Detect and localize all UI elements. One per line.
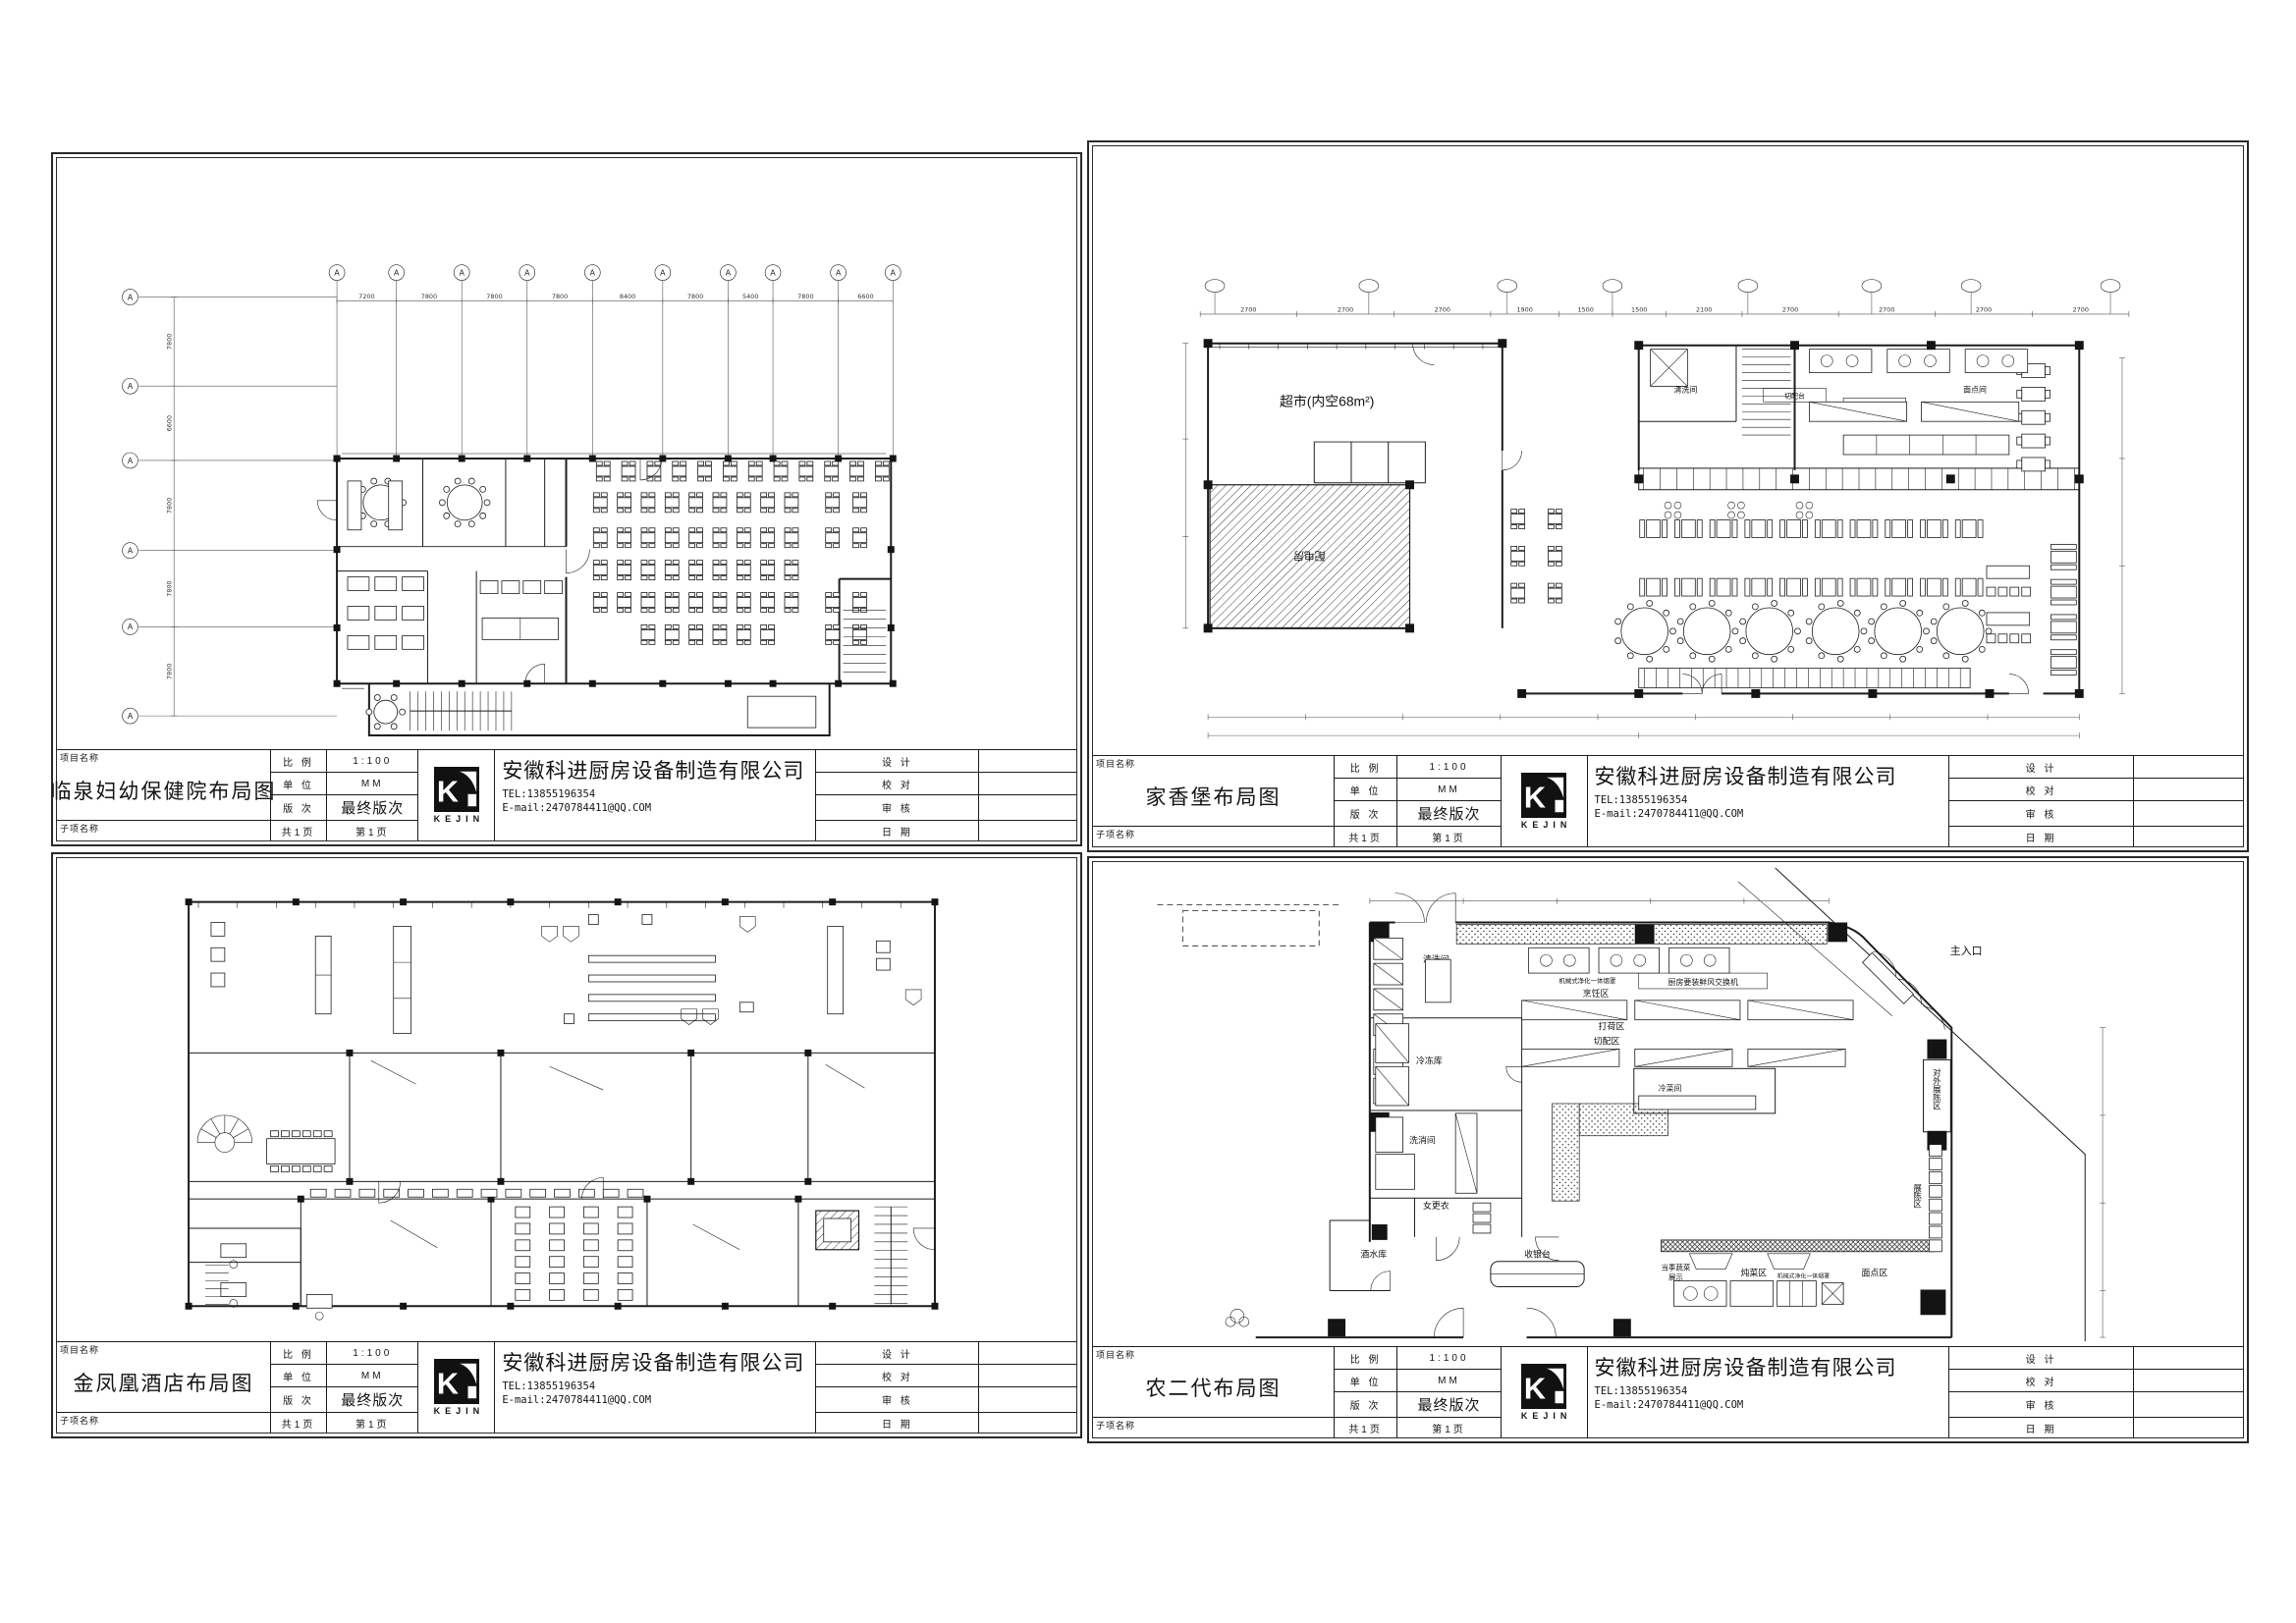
titleblock-cell [2134, 827, 2243, 846]
svg-text:A: A [660, 268, 666, 277]
sheet-jiaxiangbao: 超市(内空68m²) 配电房 清洗间 切配台 打荷台 面点间 270027002… [1087, 140, 2249, 852]
titleblock-cell: 比 例 [271, 750, 326, 773]
titleblock-column [2134, 756, 2243, 846]
svg-text:1500: 1500 [1631, 305, 1647, 313]
svg-text:A: A [128, 622, 134, 631]
fresh-air-note: 厨房要装鲜风交换机 [1668, 977, 1738, 987]
company-name: 安徽科进厨房设备制造有限公司 [502, 755, 815, 784]
svg-text:2700: 2700 [1435, 305, 1450, 313]
svg-text:A: A [128, 457, 134, 465]
svg-text:A: A [334, 268, 340, 277]
cooking-zone-label: 烹饪区 [1583, 988, 1610, 999]
titleblock-column [979, 1342, 1076, 1433]
titleblock-column: 1:100MM最终版次第1页 [327, 750, 418, 840]
company-tel: TEL:13855196354 [502, 1380, 815, 1393]
titleblock-cell: 设 计 [816, 1342, 978, 1365]
company-email: E-mail:2470784411@QQ.COM [1595, 1398, 1949, 1412]
titleblock-cell [979, 795, 1076, 821]
kejin-logo-icon: K [434, 767, 479, 812]
svg-text:1900: 1900 [1516, 305, 1532, 313]
titleblock-cell [979, 1387, 1076, 1413]
svg-text:A: A [770, 268, 776, 277]
kejin-logo-text: KEJIN [1521, 820, 1572, 830]
titleblock-cell: 版 次 [1335, 801, 1396, 827]
company-cell: 安徽科进厨房设备制造有限公司TEL:13855196354E-mail:2470… [495, 750, 816, 840]
svg-text:2700: 2700 [1240, 305, 1256, 313]
sheet-frame: 项目名称金凤凰酒店布局图子项名称比 例单 位版 次共1页1:100MM最终版次第… [56, 857, 1077, 1434]
titleblock-cell [2134, 779, 2243, 801]
pastry-room-label: 面点间 [1963, 385, 1987, 394]
titleblock-cell: 版 次 [271, 1387, 326, 1413]
sheet-jinfenghuang: 项目名称金凤凰酒店布局图子项名称比 例单 位版 次共1页1:100MM最终版次第… [51, 852, 1082, 1438]
titleblock-cell: 校 对 [1949, 1370, 2132, 1392]
floor-plan-jinfenghuang [57, 858, 1076, 1342]
company-name: 安徽科进厨房设备制造有限公司 [502, 1347, 815, 1377]
sheet-linquan-hospital: AAAAAAAAAA720078007800780084007800540078… [51, 152, 1082, 846]
titleblock-cell [2134, 1370, 2243, 1392]
sheet-frame: AAAAAAAAAA720078007800780084007800540078… [56, 157, 1077, 841]
title-block-jiaxiangbao: 项目名称家香堡布局图子项名称比 例单 位版 次共1页1:100MM最终版次第1页… [1093, 755, 2243, 846]
titleblock-column: 1:100MM最终版次第1页 [1397, 756, 1501, 846]
svg-text:A: A [524, 268, 530, 277]
titleblock-cell: 共1页 [271, 1413, 326, 1433]
titleblock-column: 比 例单 位版 次共1页 [1335, 1347, 1397, 1437]
titleblock-project-cell: 项目名称农二代布局图子项名称 [1093, 1347, 1335, 1437]
titleblock-cell: 最终版次 [327, 1387, 417, 1413]
svg-text:2700: 2700 [1338, 305, 1353, 313]
company-email: E-mail:2470784411@QQ.COM [1595, 807, 1949, 821]
titleblock-cell: 第1页 [1397, 1418, 1500, 1437]
logo-cell: KKEJIN [1502, 1347, 1588, 1437]
titleblock-cell: 比 例 [271, 1342, 326, 1365]
sheet-nongerdai: 清洗间 冷冻库 洗消间 女更衣 酒水库 收银台 烹饪区 打荷区 切配区 冷菜间 … [1087, 856, 2249, 1443]
titleblock-cell: 比 例 [1335, 1347, 1396, 1370]
svg-text:5400: 5400 [742, 293, 758, 300]
logo-cell: KKEJIN [418, 750, 495, 840]
disinfection-room-label: 洗消间 [1409, 1135, 1436, 1146]
svg-text:A: A [128, 382, 134, 391]
titleblock-cell: MM [327, 1365, 417, 1387]
titleblock-cell [2134, 756, 2243, 779]
titleblock-cell: 审 核 [816, 1387, 978, 1413]
svg-text:K: K [1524, 1372, 1546, 1405]
titleblock-column: 比 例单 位版 次共1页 [271, 1342, 327, 1433]
titleblock-cell: 审 核 [1949, 801, 2132, 827]
company-tel: TEL:13855196354 [1595, 793, 1949, 807]
jinfenghuang-plan-furniture [186, 898, 939, 1320]
titleblock-column: 1:100MM最终版次第1页 [1397, 1347, 1501, 1437]
sheet-frame: 超市(内空68m²) 配电房 清洗间 切配台 打荷台 面点间 270027002… [1092, 145, 2244, 847]
titleblock-cell [2134, 1347, 2243, 1370]
titleblock-cell: MM [327, 773, 417, 795]
svg-text:2700: 2700 [1879, 305, 1894, 313]
titleblock-project-cell: 项目名称家香堡布局图子项名称 [1093, 756, 1335, 846]
company-tel: TEL:13855196354 [502, 787, 815, 801]
svg-text:A: A [128, 546, 134, 555]
svg-text:7800: 7800 [687, 293, 703, 300]
titleblock-column: 设 计校 对审 核日 期 [1949, 1347, 2133, 1437]
titleblock-column: 1:100MM最终版次第1页 [327, 1342, 418, 1433]
kejin-logo-text: KEJIN [434, 814, 485, 824]
kejin-logo-icon: K [1521, 773, 1566, 818]
svg-text:6600: 6600 [166, 415, 174, 431]
company-email: E-mail:2470784411@QQ.COM [502, 1393, 815, 1407]
titleblock-cell [979, 1413, 1076, 1433]
svg-text:2700: 2700 [2073, 305, 2089, 313]
svg-text:1500: 1500 [1577, 305, 1593, 313]
titleblock-column: 设 计校 对审 核日 期 [816, 1342, 979, 1433]
cashier-label: 收银台 [1524, 1249, 1551, 1260]
titleblock-cell: 第1页 [327, 1413, 417, 1433]
titleblock-column [2134, 1347, 2243, 1437]
titleblock-cell [979, 1365, 1076, 1387]
titleblock-cell: 单 位 [1335, 1370, 1396, 1392]
titleblock-project-cell: 项目名称临泉妇幼保健院布局图子项名称 [57, 750, 271, 840]
project-title: 家香堡布局图 [1093, 769, 1334, 824]
svg-text:8400: 8400 [620, 293, 635, 300]
titleblock-cell [979, 750, 1076, 773]
cutting-counter-label: 切配台 [1784, 391, 1805, 400]
titleblock-cell: MM [1397, 779, 1500, 801]
company-cell: 安徽科进厨房设备制造有限公司TEL:13855196354E-mail:2470… [495, 1342, 816, 1433]
titleblock-cell: 1:100 [1397, 1347, 1500, 1370]
titleblock-cell: 版 次 [271, 795, 326, 821]
svg-text:7800: 7800 [166, 580, 174, 596]
main-entrance-label: 主入口 [1950, 945, 1983, 957]
svg-text:A: A [590, 268, 596, 277]
logo-cell: KKEJIN [1502, 756, 1588, 846]
drawing-canvas: AAAAAAAAAA720078007800780084007800540078… [0, 0, 2296, 1623]
company-cell: 安徽科进厨房设备制造有限公司TEL:13855196354E-mail:2470… [1588, 756, 1950, 846]
titleblock-cell: 共1页 [1335, 1418, 1396, 1437]
svg-text:7800: 7800 [166, 664, 174, 679]
titleblock-column: 比 例单 位版 次共1页 [271, 750, 327, 840]
sheet-frame: 清洗间 冷冻库 洗消间 女更衣 酒水库 收银台 烹饪区 打荷区 切配区 冷菜间 … [1092, 861, 2244, 1438]
floor-plan-hospital: AAAAAAAAAA720078007800780084007800540078… [57, 158, 1076, 750]
titleblock-cell: 第1页 [1397, 827, 1500, 846]
project-title: 金凤凰酒店布局图 [57, 1355, 270, 1410]
svg-text:2700: 2700 [1976, 305, 1992, 313]
svg-text:A: A [128, 712, 134, 721]
titleblock-cell: 第1页 [327, 821, 417, 840]
hood-note-top: 机械式净化一体烟罩 [1558, 976, 1616, 985]
kejin-logo-icon: K [1521, 1364, 1566, 1409]
svg-text:7800: 7800 [797, 293, 813, 300]
svg-text:A: A [726, 268, 732, 277]
title-block-nongerdai: 项目名称农二代布局图子项名称比 例单 位版 次共1页1:100MM最终版次第1页… [1093, 1346, 2243, 1437]
company-email: E-mail:2470784411@QQ.COM [502, 801, 815, 815]
hood-note-bottom: 机械式净化一体烟罩 [1777, 1272, 1831, 1280]
kejin-logo-text: KEJIN [434, 1406, 485, 1416]
kejin-logo-icon: K [434, 1359, 479, 1404]
svg-text:K: K [1524, 781, 1546, 814]
svg-text:7800: 7800 [421, 293, 437, 300]
titleblock-cell: MM [1397, 1370, 1500, 1392]
titleblock-cell: 1:100 [1397, 756, 1500, 779]
titleblock-cell [2134, 1392, 2243, 1418]
supermarket-label: 超市(内空68m²) [1280, 393, 1374, 408]
titleblock-cell: 最终版次 [1397, 801, 1500, 827]
cutting-zone-label: 切配区 [1594, 1036, 1620, 1046]
titleblock-cell: 校 对 [816, 773, 978, 795]
titleblock-column [979, 750, 1076, 840]
title-block-hospital: 项目名称临泉妇幼保健院布局图子项名称比 例单 位版 次共1页1:100MM最终版… [57, 749, 1076, 840]
titleblock-cell: 版 次 [1335, 1392, 1396, 1418]
display-zone-label: 展陈区 [1913, 1183, 1923, 1208]
project-title: 农二代布局图 [1093, 1360, 1334, 1415]
titleblock-cell [979, 821, 1076, 840]
titleblock-cell: 最终版次 [1397, 1392, 1500, 1418]
svg-text:A: A [128, 293, 134, 301]
kejin-logo-text: KEJIN [1521, 1411, 1572, 1421]
svg-text:2700: 2700 [1782, 305, 1798, 313]
stew-zone-label: 炖菜区 [1740, 1268, 1767, 1278]
titleblock-cell: 日 期 [1949, 1418, 2132, 1437]
titleblock-cell: 单 位 [271, 773, 326, 795]
titleblock-cell [2134, 801, 2243, 827]
titleblock-cell: 共1页 [1335, 827, 1396, 846]
prep-zone-label: 打荷区 [1599, 1021, 1625, 1032]
titleblock-project-cell: 项目名称金凤凰酒店布局图子项名称 [57, 1342, 271, 1433]
sub-project-name-label: 子项名称 [1096, 1419, 1135, 1432]
svg-text:7800: 7800 [486, 293, 502, 300]
titleblock-cell: 1:100 [327, 750, 417, 773]
sub-project-name-label: 子项名称 [60, 822, 99, 835]
freezer-label: 冷冻库 [1416, 1055, 1443, 1065]
titleblock-cell: 审 核 [816, 795, 978, 821]
titleblock-column: 设 计校 对审 核日 期 [1949, 756, 2133, 846]
svg-text:7800: 7800 [166, 498, 174, 514]
svg-text:6600: 6600 [857, 293, 873, 300]
titleblock-cell [979, 1342, 1076, 1365]
sub-project-name-label: 子项名称 [1096, 828, 1135, 840]
company-name: 安徽科进厨房设备制造有限公司 [1595, 761, 1949, 790]
svg-text:2100: 2100 [1696, 305, 1712, 313]
company-name: 安徽科进厨房设备制造有限公司 [1595, 1352, 1949, 1381]
title-block-jinfenghuang: 项目名称金凤凰酒店布局图子项名称比 例单 位版 次共1页1:100MM最终版次第… [57, 1341, 1076, 1433]
veg-display-note-1: 当季蔬菜 [1662, 1263, 1691, 1272]
beverage-store-label: 酒水库 [1360, 1249, 1387, 1260]
pastry-zone-label: 面点区 [1862, 1269, 1888, 1278]
sub-project-name-label: 子项名称 [60, 1414, 99, 1427]
titleblock-cell: 日 期 [816, 821, 978, 840]
company-tel: TEL:13855196354 [1595, 1384, 1949, 1398]
titleblock-cell [2134, 1418, 2243, 1437]
floor-plan-nongerdai: 清洗间 冷冻库 洗消间 女更衣 酒水库 收银台 烹饪区 打荷区 切配区 冷菜间 … [1093, 862, 2243, 1347]
power-room-label: 配电房 [1293, 549, 1326, 562]
titleblock-column: 设 计校 对审 核日 期 [816, 750, 979, 840]
changing-room-label: 女更衣 [1423, 1200, 1449, 1211]
titleblock-cell: 共1页 [271, 821, 326, 840]
titleblock-cell: 校 对 [1949, 779, 2132, 801]
svg-text:K: K [437, 1367, 459, 1400]
titleblock-cell: 1:100 [327, 1342, 417, 1365]
svg-text:A: A [460, 268, 465, 277]
floor-plan-jiaxiangbao: 超市(内空68m²) 配电房 清洗间 切配台 打荷台 面点间 270027002… [1093, 146, 2243, 756]
titleblock-cell: 校 对 [816, 1365, 978, 1387]
titleblock-cell: 最终版次 [327, 795, 417, 821]
titleblock-cell: 比 例 [1335, 756, 1396, 779]
logo-cell: KKEJIN [418, 1342, 495, 1433]
titleblock-cell: 设 计 [1949, 756, 2132, 779]
svg-text:7800: 7800 [552, 293, 568, 300]
svg-text:7200: 7200 [358, 293, 374, 300]
svg-text:A: A [394, 268, 400, 277]
hospital-plan-furniture: AAAAAAAAAA720078007800780084007800540078… [123, 265, 902, 730]
svg-text:A: A [891, 268, 897, 277]
titleblock-cell: 设 计 [816, 750, 978, 773]
svg-text:K: K [437, 775, 459, 808]
svg-text:A: A [836, 268, 842, 277]
external-display-label: 对外展陈区 [1932, 1068, 1941, 1110]
titleblock-cell: 日 期 [816, 1413, 978, 1433]
company-cell: 安徽科进厨房设备制造有限公司TEL:13855196354E-mail:2470… [1588, 1347, 1950, 1437]
titleblock-cell: 审 核 [1949, 1392, 2132, 1418]
titleblock-cell: 日 期 [1949, 827, 2132, 846]
titleblock-cell: 单 位 [271, 1365, 326, 1387]
svg-text:7800: 7800 [166, 334, 174, 350]
titleblock-cell: 单 位 [1335, 779, 1396, 801]
titleblock-column: 比 例单 位版 次共1页 [1335, 756, 1397, 846]
titleblock-cell: 设 计 [1949, 1347, 2132, 1370]
titleblock-cell [979, 773, 1076, 795]
cold-dish-room-label: 冷菜间 [1659, 1083, 1682, 1093]
project-title: 临泉妇幼保健院布局图 [57, 763, 270, 818]
